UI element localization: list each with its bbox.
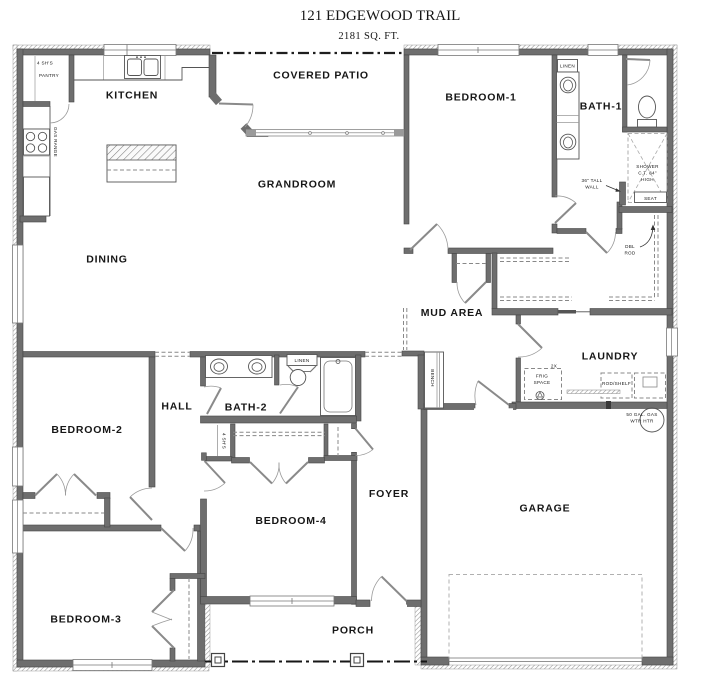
svg-text:BEDROOM-3: BEDROOM-3 bbox=[50, 614, 121, 626]
svg-text:FOYER: FOYER bbox=[369, 488, 409, 500]
svg-text:ROD/SHELF: ROD/SHELF bbox=[602, 381, 631, 386]
svg-text:BEDROOM-2: BEDROOM-2 bbox=[51, 424, 122, 436]
svg-text:HALL: HALL bbox=[161, 401, 192, 413]
svg-text:KITCHEN: KITCHEN bbox=[106, 90, 158, 102]
svg-text:GARAGE: GARAGE bbox=[520, 503, 571, 515]
svg-text:BENCH: BENCH bbox=[430, 369, 435, 387]
svg-text:2X: 2X bbox=[551, 364, 557, 369]
svg-text:LINEN: LINEN bbox=[294, 358, 309, 363]
svg-text:BATH-2: BATH-2 bbox=[225, 402, 268, 414]
svg-text:C.T. 84": C.T. 84" bbox=[638, 171, 657, 176]
svg-text:SEAT: SEAT bbox=[644, 196, 657, 201]
svg-text:HIGH: HIGH bbox=[641, 177, 654, 182]
svg-text:PORCH: PORCH bbox=[332, 625, 374, 637]
svg-text:PANTRY: PANTRY bbox=[39, 73, 59, 78]
svg-text:BEDROOM-4: BEDROOM-4 bbox=[255, 515, 326, 527]
svg-text:BEDROOM-1: BEDROOM-1 bbox=[445, 92, 516, 104]
svg-text:DBL: DBL bbox=[625, 244, 635, 249]
svg-text:GRANDROOM: GRANDROOM bbox=[258, 179, 336, 191]
svg-text:LINEN: LINEN bbox=[560, 64, 575, 69]
svg-text:SHOWER: SHOWER bbox=[636, 164, 659, 169]
svg-text:SPACE: SPACE bbox=[534, 380, 551, 385]
svg-text:GAS RANGE: GAS RANGE bbox=[53, 127, 58, 157]
svg-text:121 EDGEWOOD TRAIL: 121 EDGEWOOD TRAIL bbox=[300, 8, 461, 24]
svg-text:50 GAL. GAS: 50 GAL. GAS bbox=[626, 412, 657, 417]
svg-text:DINING: DINING bbox=[86, 254, 128, 266]
svg-text:FRIG: FRIG bbox=[536, 374, 548, 379]
svg-text:BATH-1: BATH-1 bbox=[580, 101, 623, 113]
svg-text:4 SH'S: 4 SH'S bbox=[37, 61, 53, 66]
svg-text:2181 SQ. FT.: 2181 SQ. FT. bbox=[338, 31, 399, 42]
svg-text:WALL: WALL bbox=[585, 185, 599, 190]
svg-text:ROD: ROD bbox=[624, 251, 635, 256]
svg-text:36" TALL: 36" TALL bbox=[582, 178, 603, 183]
svg-text:COVERED PATIO: COVERED PATIO bbox=[273, 70, 369, 82]
svg-text:4 SH'S: 4 SH'S bbox=[222, 433, 227, 449]
svg-text:LAUNDRY: LAUNDRY bbox=[582, 351, 639, 363]
svg-text:WTR HTR: WTR HTR bbox=[630, 419, 654, 424]
svg-text:MUD AREA: MUD AREA bbox=[421, 307, 484, 319]
